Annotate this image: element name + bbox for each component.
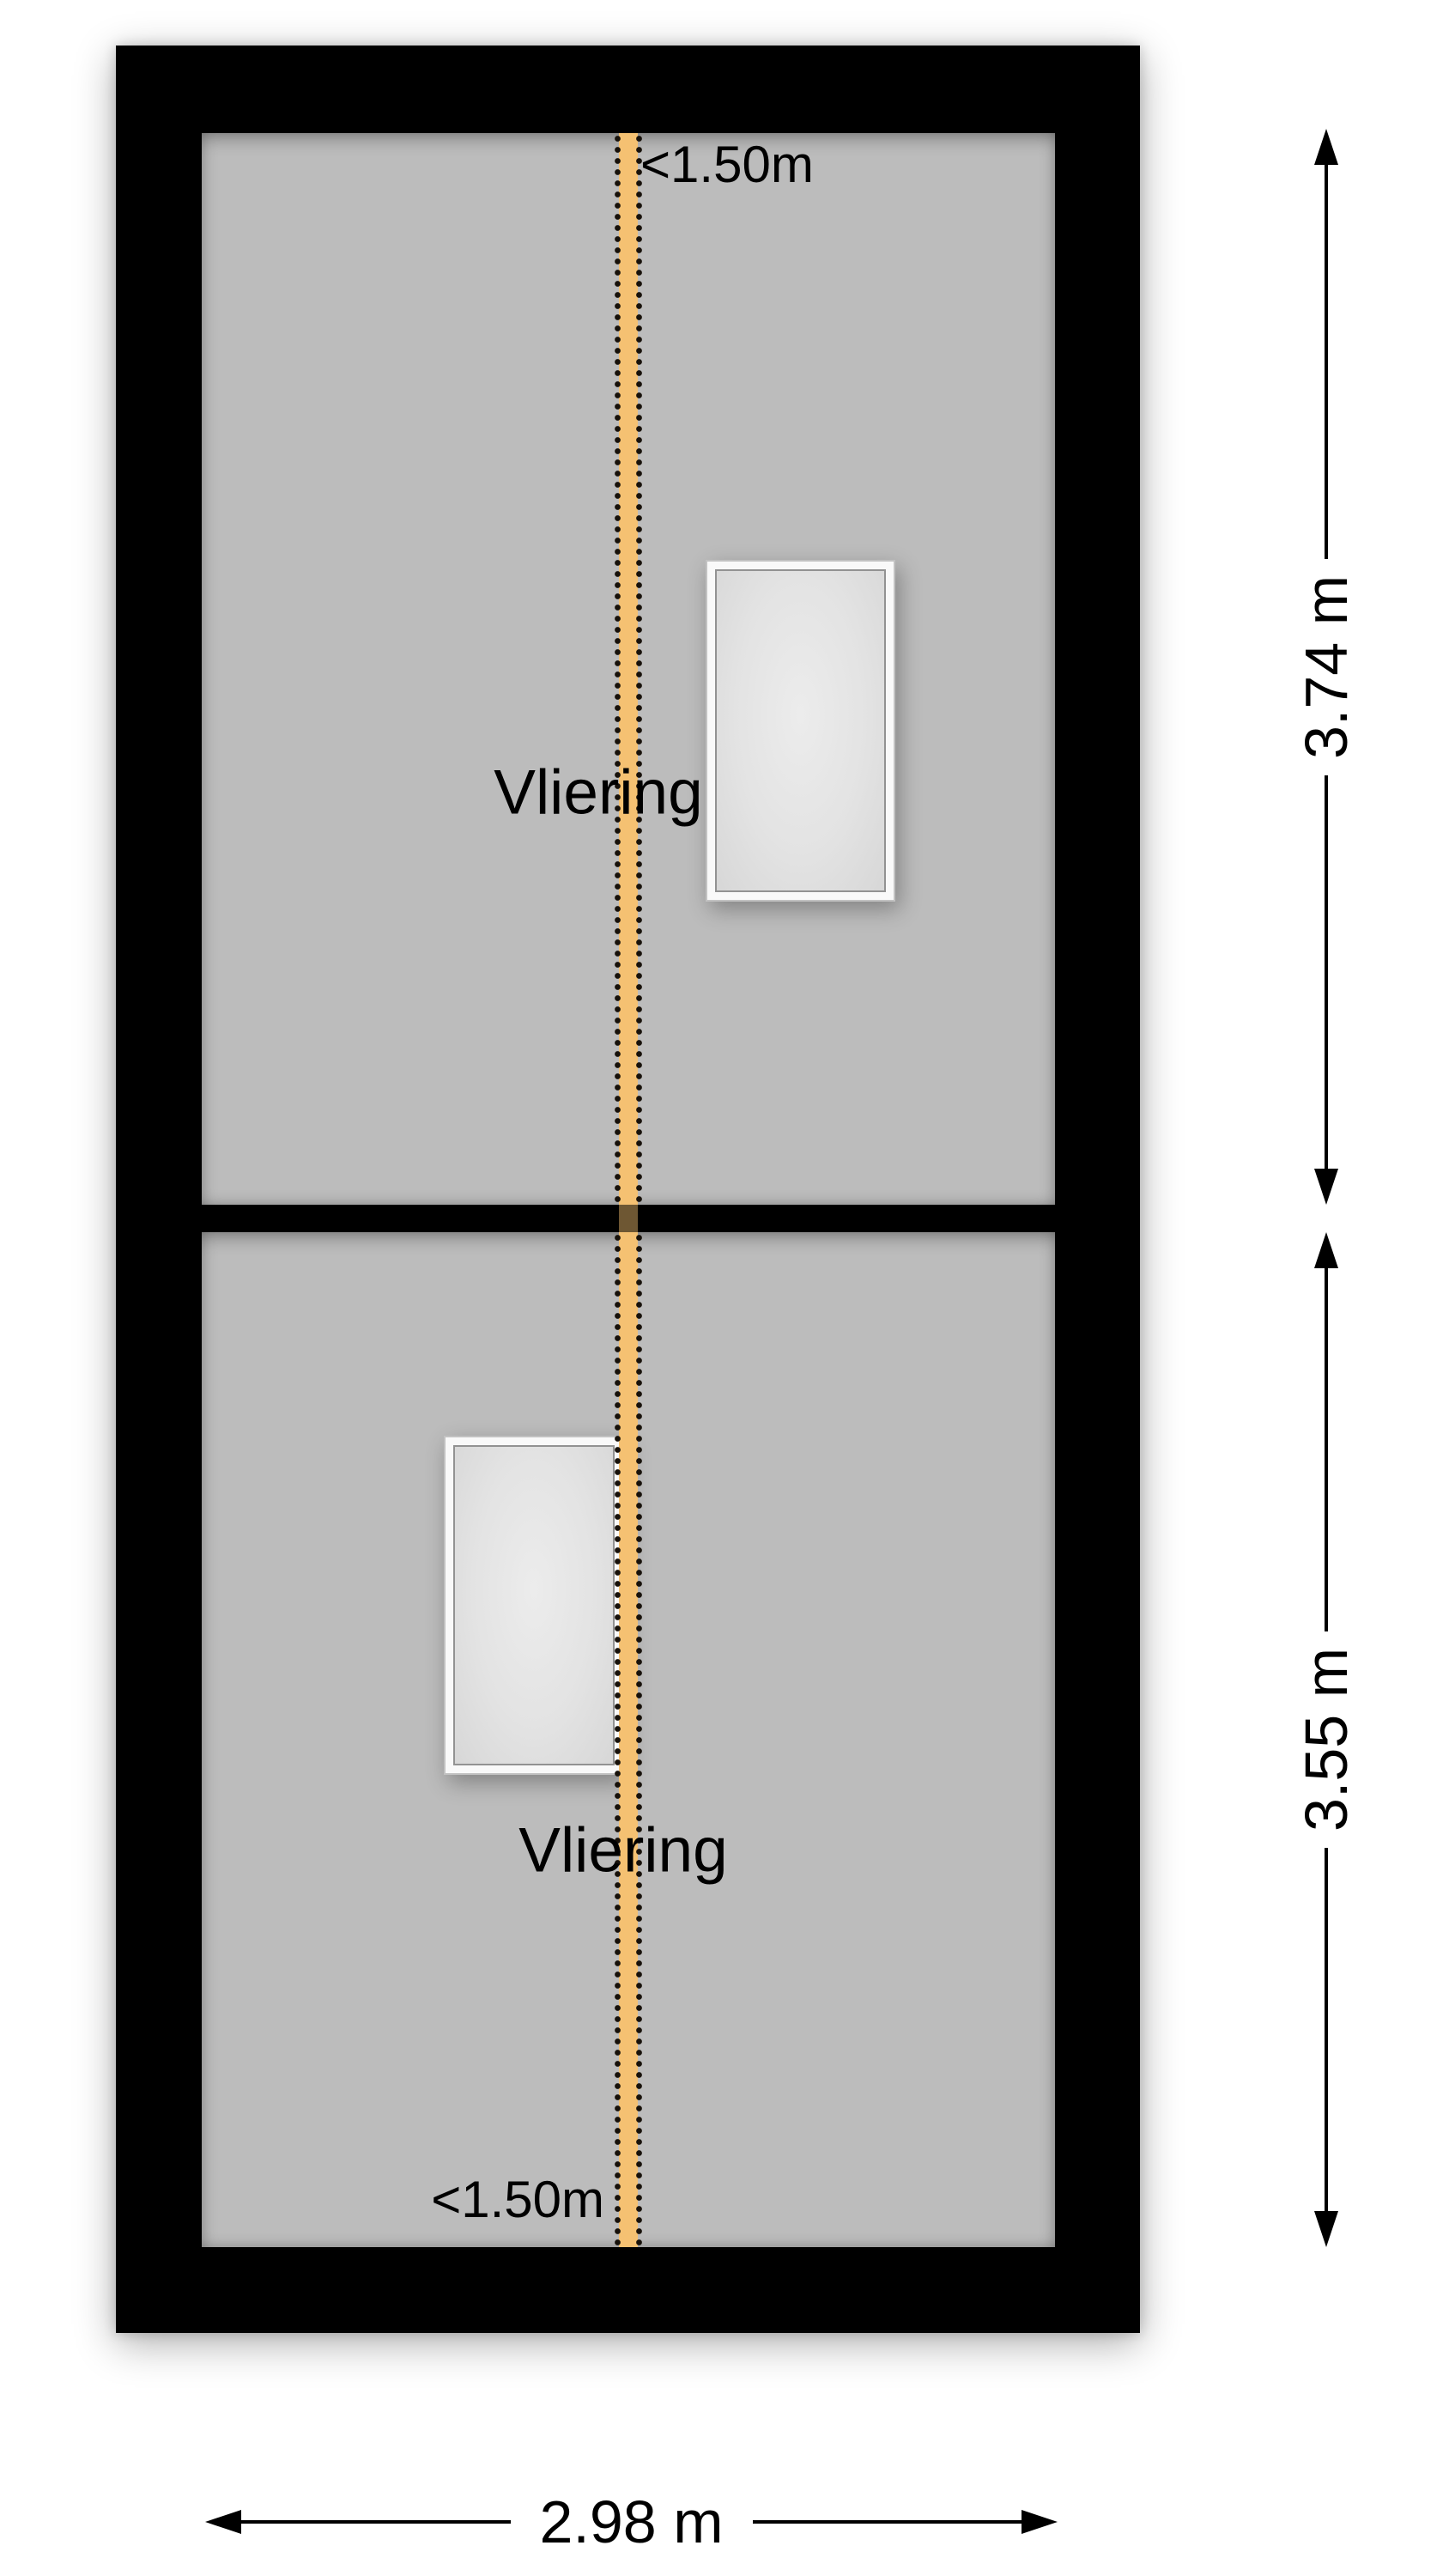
arrow-down-icon	[1314, 1169, 1338, 1205]
room-label-upper: Vliering	[494, 762, 702, 824]
window-glass	[715, 569, 886, 892]
dimension-line	[1325, 775, 1328, 1170]
dimension-label: 3.55 m	[1296, 1648, 1356, 1832]
skylight-window-lower	[444, 1436, 624, 1775]
dimension-line	[1325, 1268, 1328, 1631]
dimension-line	[241, 2520, 511, 2524]
dimension-lower-room-height: 3.55 m	[1314, 1232, 1338, 2247]
arrow-left-icon	[205, 2510, 241, 2534]
headroom-line-wall-crossing	[619, 1205, 638, 1232]
dimension-upper-room-height: 3.74 m	[1314, 129, 1338, 1205]
headroom-label-bottom: <1.50m	[431, 2174, 604, 2226]
dimension-overall-width: 2.98 m	[205, 2503, 1058, 2541]
dimension-label: 3.74 m	[1296, 575, 1356, 759]
room-label-lower: Vliering	[518, 1820, 727, 1882]
arrow-right-icon	[1022, 2510, 1058, 2534]
arrow-up-icon	[1314, 129, 1338, 165]
dimension-line	[1325, 165, 1328, 559]
headroom-line-lower	[619, 1232, 638, 2247]
dimension-line	[1325, 1848, 1328, 2211]
arrow-up-icon	[1314, 1232, 1338, 1268]
arrow-down-icon	[1314, 2211, 1338, 2247]
dimension-line	[753, 2520, 1022, 2524]
window-glass	[453, 1445, 615, 1765]
dimension-label: 2.98 m	[540, 2492, 724, 2552]
floorplan-page: <1.50m <1.50m Vliering Vliering 3.74 m 3…	[0, 0, 1449, 2576]
headroom-label-top: <1.50m	[640, 139, 814, 191]
skylight-window-upper	[706, 560, 895, 902]
headroom-line-upper	[619, 133, 638, 1205]
